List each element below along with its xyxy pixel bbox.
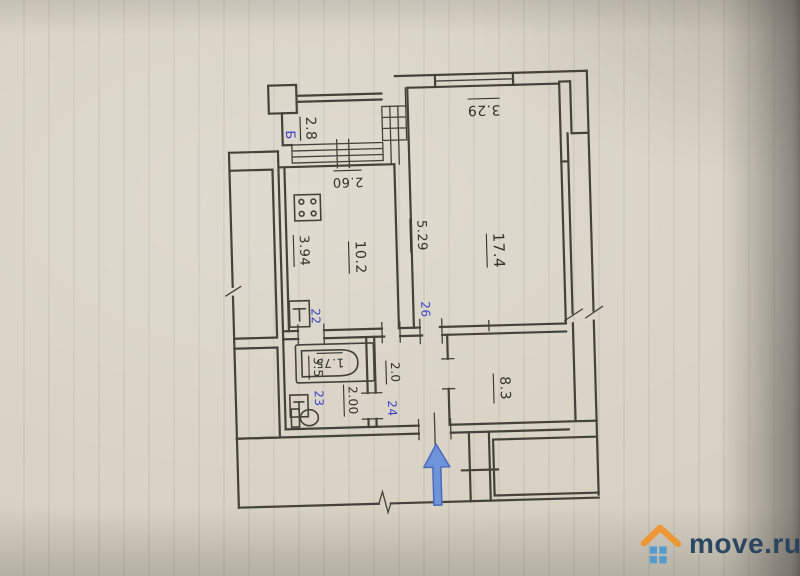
label-kitchen-depth: 3.94 (296, 235, 312, 266)
hallway-left-wall (447, 335, 450, 425)
label-balcony-area: 2.8 (302, 116, 319, 140)
moveru-logo-icon (640, 521, 682, 567)
label-bathroom-width: 2.00 (346, 386, 361, 415)
floor-plan-photo: Б 2.8 2.60 3.94 10.2 22 3.29 5.29 17.4 2… (0, 0, 800, 576)
hallway-door-ticks (442, 359, 455, 389)
watermark-text: move.ru (689, 528, 800, 560)
floor-plan: Б 2.8 2.60 3.94 10.2 22 3.29 5.29 17.4 2… (195, 54, 612, 535)
label-balcony-tag: Б (282, 130, 297, 140)
label-corridor-door-tag: 24 (385, 400, 399, 417)
corridor-bottom-wall (239, 498, 599, 508)
wall-break-bottom (378, 491, 391, 512)
stove-icon (294, 194, 321, 221)
wall-break-left (226, 287, 241, 296)
divider-wall-lower (283, 331, 566, 339)
label-kitchen-width: 2.60 (332, 174, 363, 190)
right-channel (561, 133, 597, 422)
living-room-walls (407, 84, 566, 328)
adjacent-wall-blocks (229, 170, 279, 439)
door-jamb-ticks (298, 318, 490, 347)
entrance-door-ticks (418, 413, 451, 446)
wall-break-right (564, 306, 602, 320)
vent-shaft-hatch (381, 88, 407, 165)
entrance-arrow-icon (423, 444, 451, 506)
divider-wall-upper (283, 323, 566, 331)
kitchen-sink-icon (289, 301, 310, 328)
label-bathroom-area: 3.5 (311, 357, 326, 378)
bathroom-right-wall (366, 337, 377, 427)
label-living-area: 17.4 (489, 232, 508, 268)
watermark-moveru: move.ru (640, 521, 800, 567)
stairwell-block (493, 437, 599, 496)
label-corridor-width: 2.0 (388, 362, 403, 383)
bathroom-door-ticks (362, 393, 383, 420)
label-kitchen-area: 10.2 (351, 240, 368, 274)
label-hallway-area: 8.3 (496, 376, 513, 400)
label-living-width: 3.29 (467, 101, 501, 118)
living-room-window (435, 79, 513, 81)
label-living-depth: 5.29 (413, 220, 429, 251)
kitchen-walls (278, 148, 402, 429)
label-living-door-tag: 26 (418, 301, 432, 318)
label-kitchen-door-tag: 22 (308, 308, 322, 325)
label-bathroom-door-tag: 23 (312, 390, 326, 407)
